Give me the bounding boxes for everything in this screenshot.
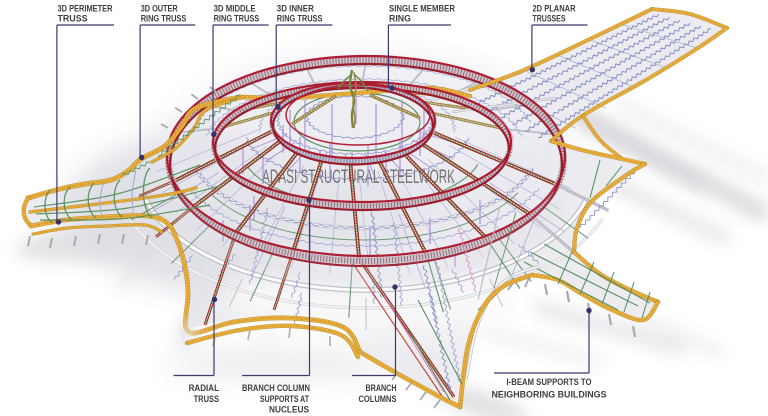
svg-text:SUPPORTS AT: SUPPORTS AT [260,394,309,404]
svg-text:COLUMNS: COLUMNS [359,394,397,404]
svg-text:RADIAL: RADIAL [189,383,220,393]
svg-text:3D MIDDLE: 3D MIDDLE [214,3,256,13]
svg-text:I-BEAM SUPPORTS TO: I-BEAM SUPPORTS TO [507,377,592,387]
svg-text:3D OUTER: 3D OUTER [141,3,178,13]
svg-text:NUCLEUS: NUCLEUS [269,405,309,415]
svg-text:RING TRUSS: RING TRUSS [214,13,260,23]
svg-text:TRUSSES: TRUSSES [533,13,566,23]
svg-text:RING TRUSS: RING TRUSS [141,13,187,23]
svg-text:RING TRUSS: RING TRUSS [277,13,323,23]
svg-text:SINGLE MEMBER: SINGLE MEMBER [389,3,455,13]
svg-text:BRANCH COLUMN: BRANCH COLUMN [242,383,310,393]
svg-text:2D PLANAR: 2D PLANAR [533,3,576,13]
svg-text:3D INNER: 3D INNER [277,3,314,13]
svg-text:TRUSS: TRUSS [194,394,219,404]
svg-text:TRUSS: TRUSS [58,13,88,23]
svg-text:BRANCH: BRANCH [366,383,397,393]
svg-text:RING: RING [389,13,411,23]
svg-text:3D PERIMETER: 3D PERIMETER [58,3,113,13]
svg-text:NEIGHBORING BUILDINGS: NEIGHBORING BUILDINGS [492,390,607,400]
